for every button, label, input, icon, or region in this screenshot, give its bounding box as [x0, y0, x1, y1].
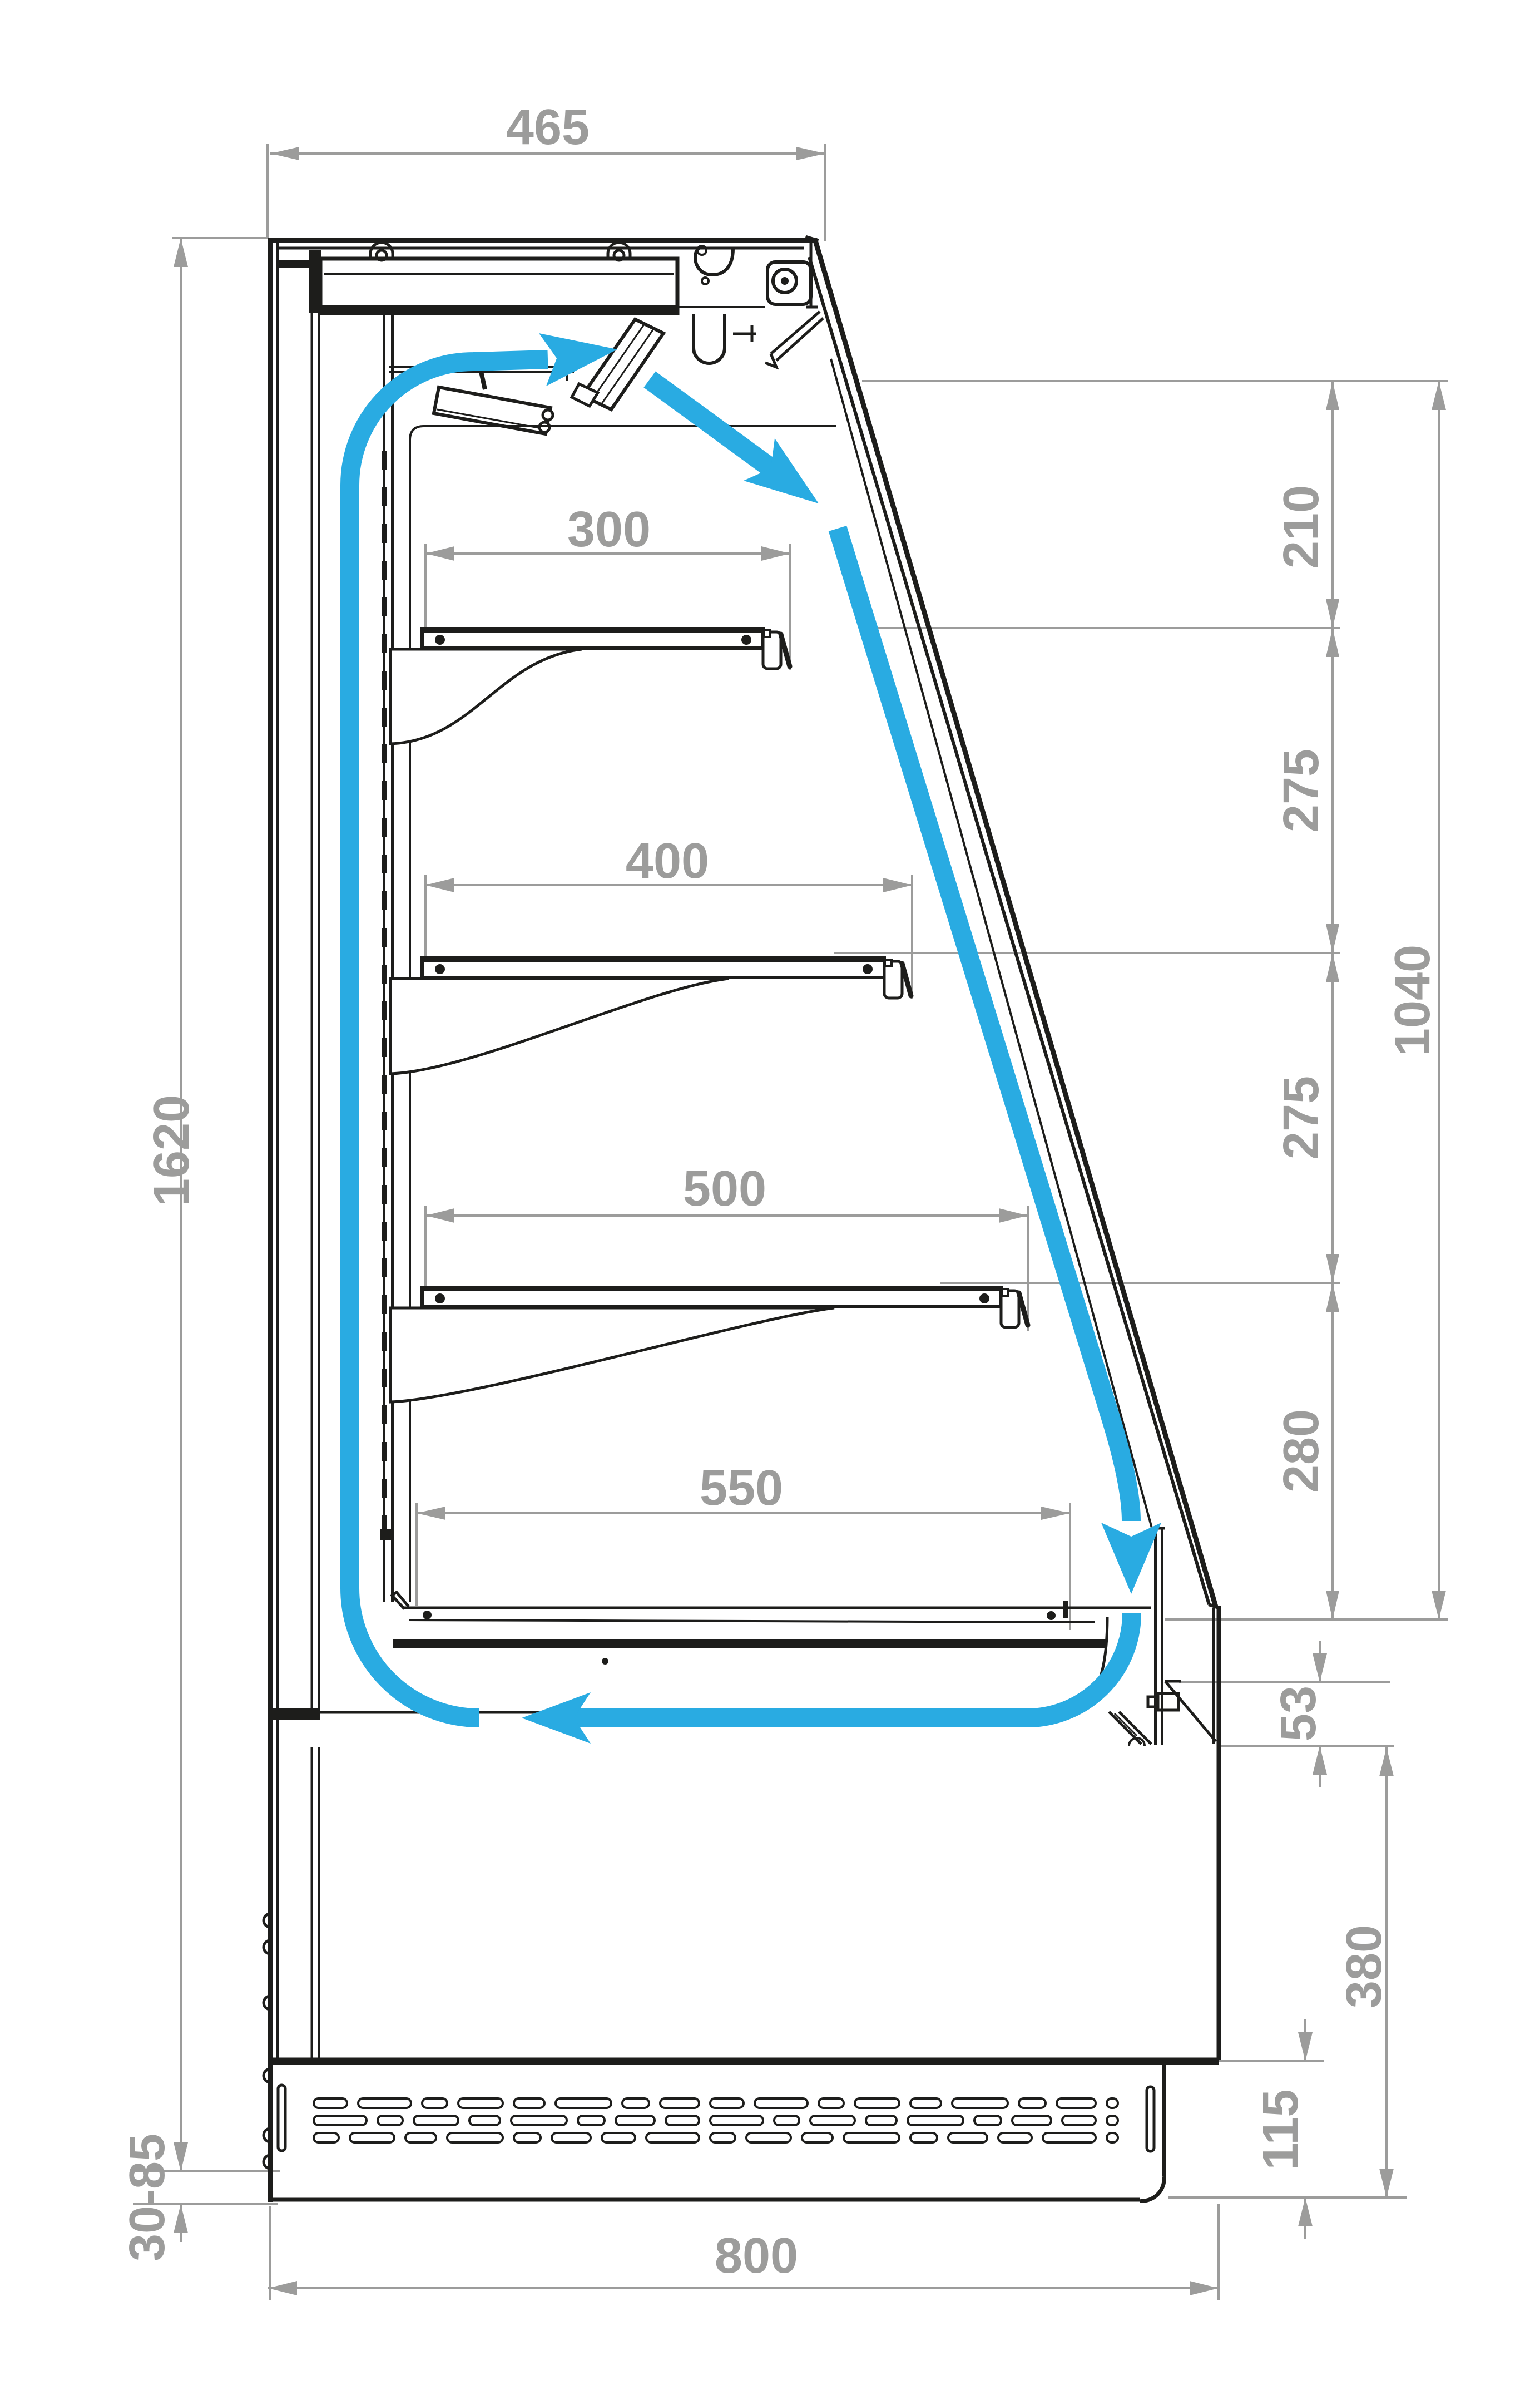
svg-text:1040: 1040 [1385, 945, 1440, 1056]
svg-text:800: 800 [715, 2228, 798, 2284]
svg-text:115: 115 [1253, 2089, 1309, 2170]
svg-text:53: 53 [1271, 1686, 1326, 1741]
svg-text:1620: 1620 [144, 1095, 200, 1206]
svg-text:465: 465 [506, 100, 590, 155]
svg-text:280: 280 [1274, 1409, 1329, 1493]
svg-text:30-85: 30-85 [120, 2134, 175, 2261]
svg-text:275: 275 [1274, 749, 1329, 832]
svg-text:275: 275 [1274, 1076, 1329, 1159]
svg-text:210: 210 [1274, 485, 1329, 569]
svg-text:380: 380 [1336, 1925, 1392, 2008]
svg-text:400: 400 [626, 833, 709, 889]
svg-text:500: 500 [683, 1161, 766, 1217]
svg-text:300: 300 [567, 502, 651, 557]
svg-text:550: 550 [700, 1460, 783, 1516]
